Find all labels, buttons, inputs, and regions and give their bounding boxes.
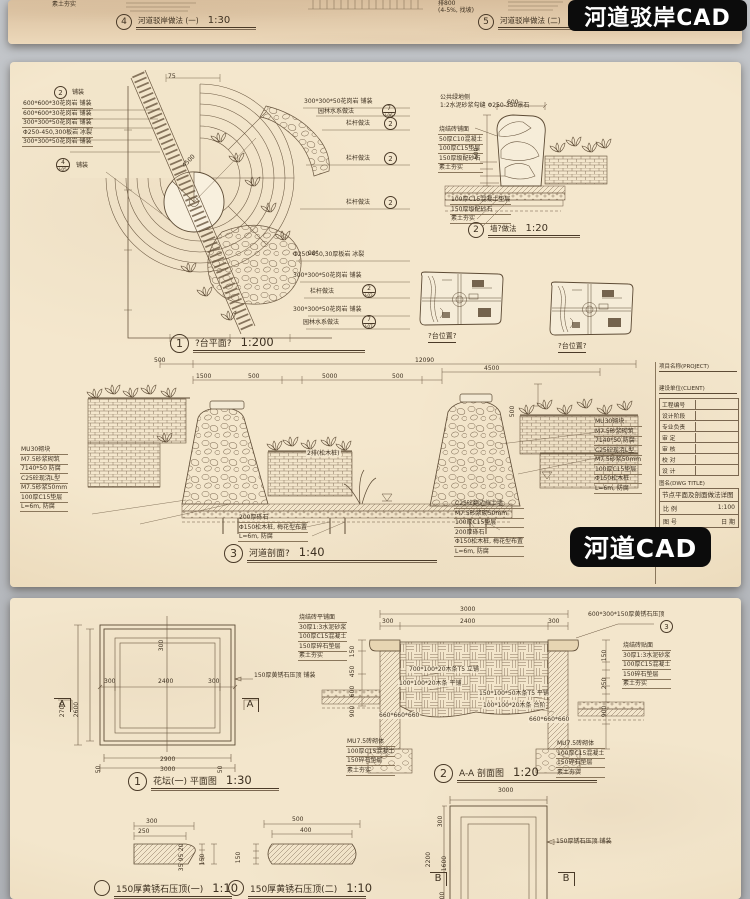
section-note-left: MU30砌块M7.5砂浆砌筑7140*50 防腐C25砼现浇L型M7.5砂浆50…: [20, 446, 68, 513]
material-label: 700*100*20木条T5 立铺: [408, 666, 480, 673]
callout-number: 5: [478, 14, 494, 30]
dim-label: 250: [138, 828, 149, 835]
callout-body: 河道驳岸做法 (一) 1:30: [136, 14, 256, 30]
paving-label: 园林水系做法: [303, 319, 339, 326]
platform-plan-drawing: [70, 70, 410, 360]
callout-title: 花坛(一) 平面图: [153, 774, 217, 787]
dim-label: 660*660*660: [378, 712, 420, 719]
construction-note: M7.5砂浆50mm: [20, 484, 68, 493]
paving-label: 栏杆做法: [346, 199, 370, 206]
construction-note: 素土夯实: [438, 164, 483, 173]
construction-note: 100厚C15混凝土: [622, 661, 671, 670]
paving-label: 栏杆做法: [310, 288, 334, 295]
dim-label: 12090: [415, 357, 434, 364]
callout-number: 3: [224, 544, 243, 563]
callout-scale: 1:10: [346, 881, 372, 895]
dim-label: 1500: [196, 373, 211, 380]
table-row: 专业负责: [659, 421, 739, 432]
callout-scale: 1:30: [208, 15, 230, 26]
callout-scale: 1:40: [299, 545, 325, 559]
construction-note: 素土夯实: [298, 652, 347, 661]
dim-label: 2900: [160, 756, 175, 763]
construction-note: C25砼现浇L型: [594, 447, 642, 456]
section-side-note: 烧结砖贴面30厚1:3水泥砂浆100厚C15混凝土150碎石垫层素土夯实: [622, 642, 671, 690]
date-label: 日 期: [721, 517, 735, 526]
construction-note: 100厚C15混凝土: [556, 750, 605, 759]
bubble-number: 7: [363, 316, 375, 324]
callout-body: A-A 剖面图 1:20: [457, 764, 597, 783]
dim-label: 150: [601, 650, 608, 661]
ref-bubble: 2 J-02: [362, 284, 376, 298]
dim-label: 400: [300, 827, 311, 834]
section-marker-a: A: [54, 698, 71, 712]
ref-bubble: 2: [384, 196, 397, 209]
dim-label: 150: [349, 646, 356, 657]
plan-title-callout: 1 ?台平面? 1:200: [170, 334, 365, 353]
construction-note: 烧结砖贴面: [622, 642, 671, 651]
callout-underline: [457, 780, 597, 783]
dwg-label: 图名(DWG TITLE): [659, 481, 705, 487]
coping-callout-note: 600*300*150厚黄锈石压顶: [588, 611, 664, 618]
construction-note: 100厚C15垫层: [20, 494, 68, 503]
product-badge-mid: 河道CAD: [570, 527, 711, 567]
row-label: 设计阶段: [660, 411, 696, 420]
table-row: 设 计: [659, 465, 739, 476]
flower-bed-plan-drawing: [40, 612, 325, 792]
callout-number: 1: [128, 772, 147, 791]
paving-label: 600*600*30花岗岩 铺装: [22, 100, 93, 109]
section-foot-note-left: MU7.5砖砌体100厚C15混凝土150碎石垫层素土夯实: [346, 738, 395, 776]
dim-label: 2400: [158, 678, 173, 685]
title-block-table: 工程编号 设计阶段 专业负责 审 定 审 核 校 对 设 计: [659, 398, 739, 476]
construction-note: M7.5砂浆砌50mm: [454, 510, 524, 519]
key-plan-map-2: [542, 278, 637, 340]
construction-note: 150厚碎石垫层: [298, 643, 347, 652]
row-label: 审 核: [660, 444, 696, 453]
plan-note-stack: 烧结砖平铺面30厚1:3水泥砂浆100厚C15混凝土150厚碎石垫层素土夯实: [298, 614, 347, 662]
title-block-project: 项目名称(PROJECT): [659, 362, 741, 372]
construction-note: 100厚C15垫层: [454, 519, 524, 528]
bubble-ref: J-05: [59, 167, 67, 172]
construction-note: 150碎石垫层: [622, 671, 671, 680]
dim-label: 300: [548, 618, 559, 625]
bubble-number: 7: [383, 105, 395, 113]
project-label: 项目名称(PROJECT): [659, 364, 709, 370]
paving-label: 300*300*50花岗岩 铺装: [22, 119, 93, 128]
paving-label: Φ250-450,300板岩 冰裂: [22, 129, 93, 138]
callout-scale: 1:200: [241, 335, 274, 349]
paving-label: 园林水系做法: [318, 108, 354, 115]
callout-number: 2: [434, 764, 453, 783]
dim-label: 300: [104, 678, 115, 685]
section-note-mid: 200厚砾石Φ150松木桩, 梅花型布置L=6m, 防腐: [238, 514, 308, 543]
construction-note: 烧结砖平铺面: [298, 614, 347, 623]
construction-note: Φ150松木桩, 梅花型布置: [238, 524, 308, 533]
callout-number: [94, 880, 110, 896]
callout-underline: [247, 560, 437, 563]
row-label: 校 对: [660, 455, 696, 464]
bubble-number: 4: [57, 159, 69, 167]
construction-note: C25砼现浇L型: [20, 475, 68, 484]
callout-title: 150厚黄锈石压顶(二): [250, 882, 337, 895]
dim-label: 660*660*660: [528, 716, 570, 723]
dim-label: 2400: [460, 618, 475, 625]
dim-label: 450: [349, 666, 356, 677]
callout-title: A-A 剖面图: [459, 766, 504, 779]
ref-bubble: 7 J-06: [382, 104, 396, 118]
construction-note: 素土夯实: [622, 680, 671, 689]
construction-note: Φ150松木桩: [594, 475, 642, 484]
callout-underline: [136, 27, 256, 30]
dim-label: 900: [601, 706, 608, 717]
callout-scale: 1:30: [226, 773, 252, 787]
dim-label: 3000: [460, 606, 475, 613]
construction-note: 100厚C15垫层: [594, 466, 642, 475]
callout-underline: [248, 896, 366, 899]
construction-note: 200厚砾石: [238, 514, 308, 523]
ref-bubble: 3: [660, 620, 673, 633]
construction-note: 30厚1:3水泥砂浆: [622, 652, 671, 661]
dim-label: 75: [168, 73, 176, 80]
construction-note: (4-5%, 找坡): [438, 7, 474, 14]
dim-label: 500: [292, 816, 303, 823]
section-aa-callout: 2 A-A 剖面图 1:20: [434, 764, 597, 783]
construction-note: 烧结砖铺面: [438, 126, 483, 135]
dim-label: 600: [507, 99, 518, 106]
paving-label: 铺装: [76, 162, 88, 169]
screenshot-root: 素土夯实 排800 (4-5%, 找坡) 4 河道驳岸做法 (一) 1:30 5…: [0, 0, 750, 899]
material-label: 150*100*50木条T5 平铺: [478, 690, 550, 697]
section-note-mid2: C25砼翻边挡土墙M7.5砂浆砌50mm100厚C15垫层200厚砾石Φ150松…: [454, 500, 524, 557]
flower-bed-plan2-drawing: [442, 794, 617, 899]
table-row: 审 定: [659, 432, 739, 443]
callout-scale: 1:20: [525, 223, 547, 234]
construction-note: Φ150松木桩, 梅花型布置: [454, 538, 524, 547]
construction-note: 150碎石垫层: [346, 757, 395, 766]
construction-note: 150厚级配砂石: [450, 206, 511, 215]
wall-title-callout: 2 墙?做法 1:20: [468, 222, 580, 238]
construction-note: 200厚砾石: [454, 529, 524, 538]
ref-bubble: 4 J-05: [56, 158, 70, 172]
coping-detail-2-drawing: [238, 810, 378, 880]
dim-label: 2600: [73, 702, 80, 717]
dim-label: 300: [437, 816, 444, 827]
construction-note: L=6m, 防腐: [238, 533, 308, 542]
scale-label: 比 例: [663, 504, 677, 513]
key-plan-label: ?台位置?: [558, 341, 586, 353]
dim-label: 4500: [484, 365, 499, 372]
paving-label: 300*300*50花岗岩 铺装: [293, 272, 361, 279]
construction-note: 7140*50 防腐: [20, 465, 68, 474]
paving-label: 栏杆做法: [346, 120, 370, 127]
callout-title: 河道剖面?: [249, 546, 290, 559]
leader-note: 150厚黄锈石压顶 铺装: [254, 672, 315, 679]
coping-detail-1-drawing: [102, 810, 247, 880]
dim-label: 3000: [498, 787, 513, 794]
dim-label: 900: [349, 706, 356, 717]
dim-label: 300: [382, 618, 393, 625]
dim-label: 150: [199, 854, 206, 865]
annotation: 2排(松木桩): [306, 450, 341, 457]
callout-number: 2: [468, 222, 484, 238]
row-label: 审 定: [660, 433, 696, 442]
dim-label: 250: [601, 678, 608, 689]
row-label: 专业负责: [660, 422, 696, 431]
construction-note: 100厚C15混凝土: [346, 748, 395, 757]
scale-row: 比 例 1:100: [659, 502, 739, 515]
table-row: 校 对: [659, 454, 739, 465]
construction-note: L=6m, 防腐: [594, 485, 642, 494]
dim-label: 300: [208, 678, 219, 685]
callout-body: 墙?做法 1:20: [488, 222, 580, 238]
row-label: 设 计: [660, 466, 696, 475]
section-note-right: MU30砌块M7.5砂浆砌筑7140*50 防腐C25砼现浇L型M7.5砂浆50…: [594, 418, 642, 494]
client-label: 建设单位(CLIENT): [659, 386, 705, 392]
callout-underline: [151, 788, 279, 791]
section-title-callout: 3 河道剖面? 1:40: [224, 544, 437, 563]
wall-note-bottom: 100厚C15混凝土垫层150厚级配砂石素土夯实: [450, 196, 511, 225]
callout-body: ?台平面? 1:200: [193, 334, 365, 353]
material-label: 100*100*20木条 台阶: [482, 702, 546, 709]
key-plan-map-1: [412, 268, 507, 330]
callout-body: 花坛(一) 平面图 1:30: [151, 772, 279, 791]
construction-note: L=6m, 防腐: [20, 503, 68, 512]
callout-body: 150厚黄锈石压顶(一) 1:10: [114, 880, 240, 899]
table-row: 工程编号: [659, 399, 739, 410]
dim-label: 600: [349, 686, 356, 697]
section-marker-b: B: [558, 872, 575, 886]
callout-title: 河道驳岸做法 (二): [500, 15, 561, 26]
scale-value: 1:100: [718, 504, 735, 513]
construction-note: L=6m, 防腐: [454, 548, 524, 557]
paving-label: 300*300*50花岗岩 铺装: [304, 98, 372, 105]
callout-scale: 1:20: [513, 765, 539, 779]
callout-number: 1: [170, 334, 189, 353]
divider: [659, 393, 737, 394]
bubble-ref: J-07: [365, 324, 373, 329]
dim-label: 600: [473, 148, 480, 159]
paving-label: 600*600*30花岗岩 铺装: [22, 110, 93, 119]
callout-title: ?台平面?: [195, 336, 232, 349]
divider: [659, 371, 737, 372]
callout-number: 4: [116, 14, 132, 30]
construction-note: MU7.5砖砌体: [556, 740, 605, 749]
coping2-callout: 150厚黄锈石压顶(二) 1:10: [228, 880, 374, 899]
ref-bubble: 2: [384, 152, 397, 165]
dim-label: 95: [178, 854, 185, 862]
construction-note: MU30砌块: [20, 446, 68, 455]
key-plan-label: ?台位置?: [428, 331, 456, 343]
callout-underline: [193, 350, 365, 353]
callout-underline: [114, 896, 232, 899]
product-badge-top: 河道驳岸CAD: [568, 0, 747, 31]
bubble-ref: J-02: [365, 293, 373, 298]
bubble-number: 2: [363, 285, 375, 293]
construction-note: M7.5砂浆砌筑: [594, 428, 642, 437]
dim-label: 500: [248, 373, 259, 380]
table-row: 审 核: [659, 443, 739, 454]
callout-number: [228, 880, 244, 896]
flower-plan-callout: 1 花坛(一) 平面图 1:30: [128, 772, 279, 791]
dim-label: 500: [392, 373, 403, 380]
paving-label: 300*300*50花岗岩 铺装: [22, 138, 93, 147]
paving-label: 300*300*50花岗岩 铺装: [293, 306, 361, 313]
dim-label: 20: [178, 844, 185, 852]
dim-label: 5000: [322, 373, 337, 380]
dim-label: 300: [146, 818, 157, 825]
paving-label: Φ250-450,30厚板岩 冰裂: [293, 251, 364, 258]
row-label: 工程编号: [660, 400, 696, 409]
dwg-no-label: 图 号: [663, 517, 677, 526]
coping1-callout: 150厚黄锈石压顶(一) 1:10: [94, 880, 240, 899]
paving-label: 栏杆做法: [346, 155, 370, 162]
construction-note: 100厚C15混凝土: [298, 633, 347, 642]
construction-note: 30厚1:3水泥砂浆: [298, 624, 347, 633]
title-block-client: 建设单位(CLIENT): [659, 384, 741, 394]
construction-note: 素土夯实: [52, 1, 76, 8]
dim-label: 500: [154, 357, 165, 364]
dim-label: 1600: [441, 856, 448, 871]
dwg-title: 节点平面及剖面做法详图: [659, 488, 739, 502]
ref-bubble: 7 J-07: [362, 315, 376, 329]
dim-label: 300: [439, 892, 446, 899]
callout-underline: [488, 235, 580, 238]
construction-note: 7140*50 防腐: [594, 437, 642, 446]
dim-label: 300: [158, 640, 165, 651]
dim-label: 50: [95, 766, 102, 774]
leader-note: 150厚锈石压顶 铺装: [556, 838, 611, 845]
construction-note: 100厚C15混凝土垫层: [450, 196, 511, 205]
section-marker-a: A: [242, 698, 259, 712]
detail-callout-4: 4 河道驳岸做法 (一) 1:30: [116, 14, 256, 30]
middle-sheet: 2 铺装 600*600*30花岗岩 铺装600*600*30花岗岩 铺装300…: [10, 62, 741, 587]
callout-title: 河道驳岸做法 (一): [138, 15, 199, 26]
construction-note: MU30砌块: [594, 418, 642, 427]
callout-body: 150厚黄锈石压顶(二) 1:10: [248, 880, 374, 899]
construction-note: 素土夯实: [346, 767, 395, 776]
callout-body: 河道剖面? 1:40: [247, 544, 437, 563]
dim-label: 500: [509, 406, 516, 417]
paving-label: 铺装: [72, 89, 84, 96]
construction-note: M7.5砂浆砌筑: [20, 456, 68, 465]
paving-legend: 600*600*30花岗岩 铺装600*600*30花岗岩 铺装300*300*…: [22, 100, 93, 148]
table-row: 设计阶段: [659, 410, 739, 421]
material-label: 100*100*20木条 平铺: [398, 680, 462, 687]
construction-note: 50厚C10混凝土: [438, 136, 483, 145]
ref-bubble: 2: [384, 117, 397, 130]
ref-bubble: 2: [54, 86, 67, 99]
construction-note: M7.5砂浆50mm: [594, 456, 642, 465]
dim-label: 35: [178, 864, 185, 872]
callout-title: 墙?做法: [490, 223, 516, 234]
dim-label: 2200: [425, 852, 432, 867]
construction-note: C25砼翻边挡土墙: [454, 500, 524, 509]
callout-title: 150厚黄锈石压顶(一): [116, 882, 203, 895]
dim-label: 150: [235, 852, 242, 863]
bottom-sheet: 2700 2600 300 300 2400 300 2900 3000 50 …: [10, 598, 741, 899]
section-marker-b: B: [430, 872, 447, 886]
title-block-dwg: 图名(DWG TITLE) 节点平面及剖面做法详图: [659, 479, 741, 502]
construction-note: MU7.5砖砌体: [346, 738, 395, 747]
